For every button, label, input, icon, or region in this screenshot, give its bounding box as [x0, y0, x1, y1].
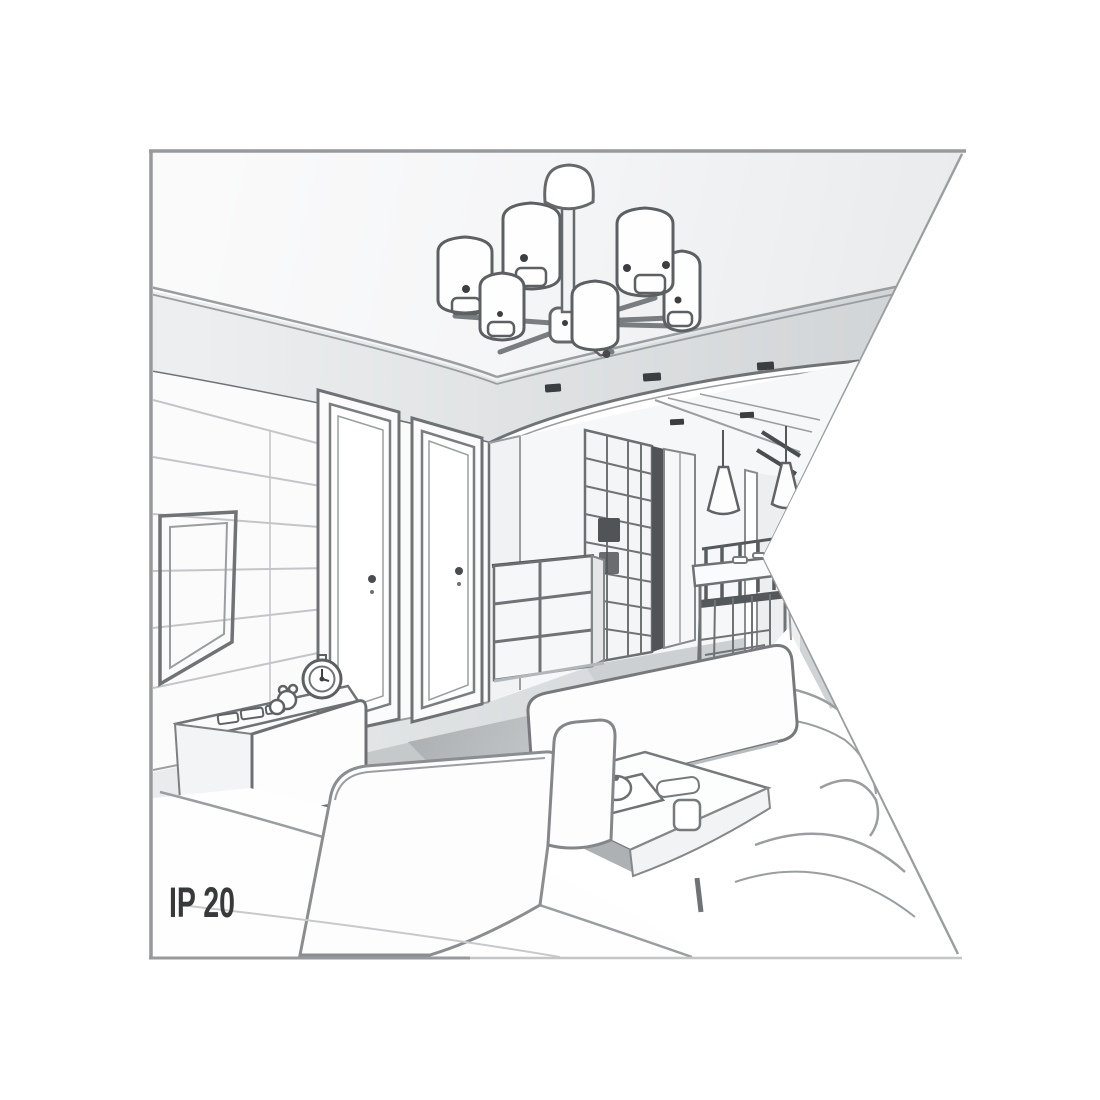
interior-door-right	[412, 418, 482, 722]
chest-of-drawers	[492, 556, 604, 681]
product-context-illustration: IP 20	[0, 0, 1100, 1100]
chandelier-shade	[617, 208, 673, 296]
door-handle-icon	[368, 575, 376, 583]
wardrobe-open-slot	[652, 446, 664, 652]
chandelier-shade	[480, 273, 524, 340]
door-handle-icon	[455, 567, 463, 575]
scene-content	[150, 153, 964, 957]
chandelier-shade	[572, 281, 618, 350]
ip-rating-label: IP 20	[169, 879, 235, 927]
room-illustration-svg: IP 20	[0, 0, 1100, 1100]
cup	[674, 800, 700, 830]
chandelier-canopy	[545, 165, 594, 209]
